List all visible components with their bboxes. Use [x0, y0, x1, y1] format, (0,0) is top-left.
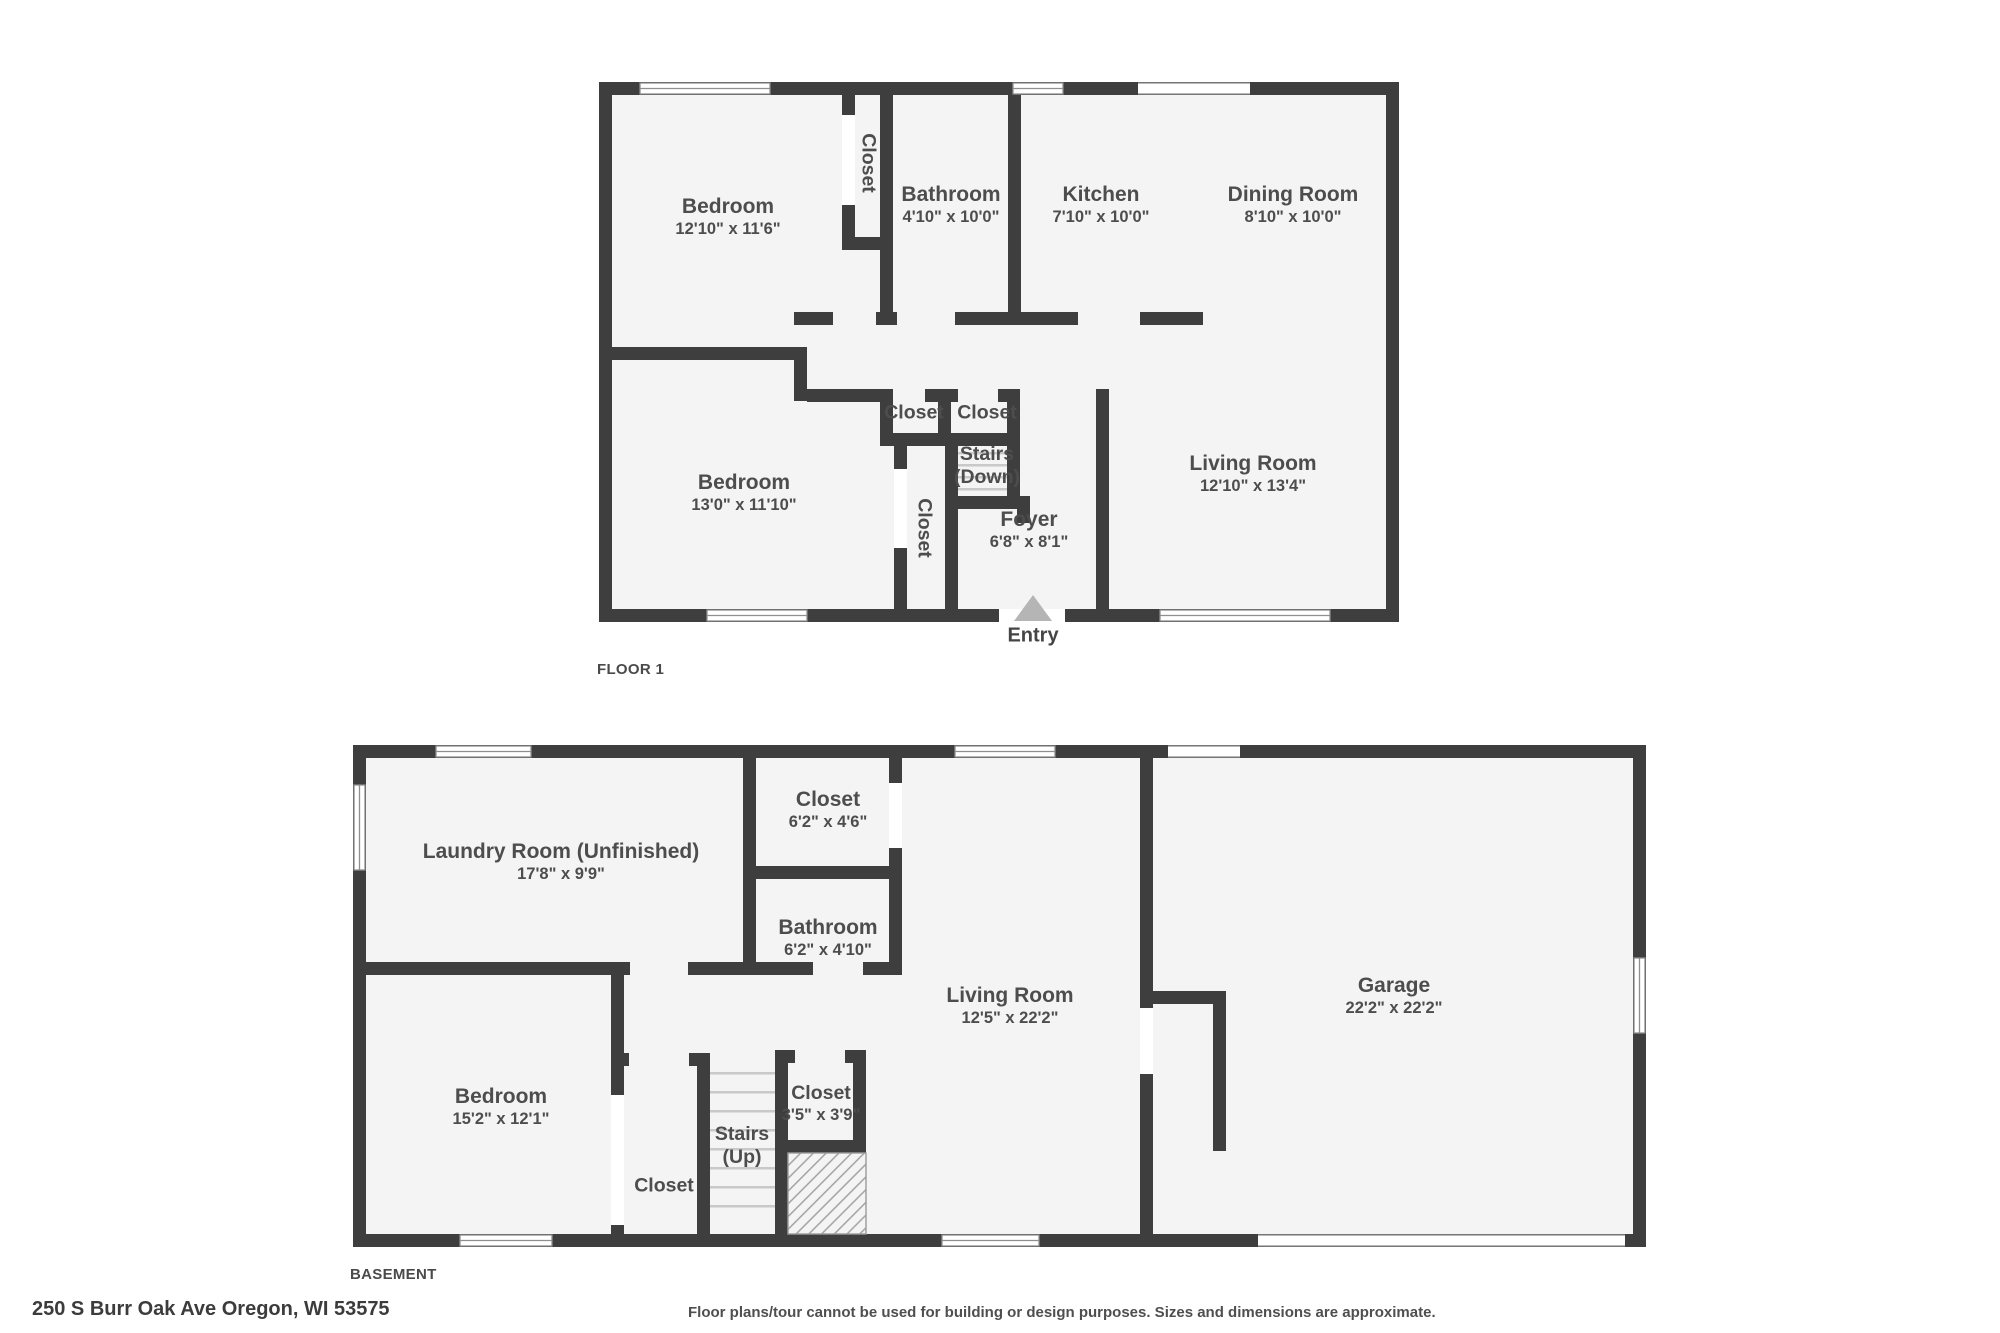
window: [707, 610, 807, 621]
window: [942, 1235, 1039, 1246]
window: [1013, 83, 1063, 94]
room-label-foyer: Foyer 6'8" x 8'1": [990, 507, 1069, 553]
room-label-closet-small: Closet 3'5" x 3'9": [782, 1082, 861, 1126]
room-label-closet-hall-left: Closet: [884, 402, 944, 425]
room-label-closet-hall-right: Closet: [957, 402, 1017, 425]
window: [955, 746, 1055, 757]
room-label-living-room-bsmt: Living Room 12'5" x 22'2": [946, 983, 1073, 1029]
room-label-laundry: Laundry Room (Unfinished) 17'8" x 9'9": [423, 839, 700, 885]
room-label-bedroom-f1-bottom: Bedroom 13'0" x 11'10": [691, 470, 796, 516]
window: [354, 785, 365, 870]
window: [640, 83, 770, 94]
room-label-bedroom-bsmt: Bedroom 15'2" x 12'1": [453, 1084, 550, 1130]
room-label-bathroom-bsmt: Bathroom 6'2" x 4'10": [778, 915, 877, 961]
room-label-kitchen: Kitchen 7'10" x 10'0": [1053, 182, 1150, 228]
room-label-garage: Garage 22'2" x 22'2": [1346, 973, 1443, 1019]
window: [436, 746, 531, 757]
hatch-area: [788, 1153, 866, 1234]
room-label-stairs-up: Stairs (Up): [715, 1123, 769, 1169]
room-label-bedroom-f1-top: Bedroom 12'10" x 11'6": [675, 194, 780, 240]
floorplan-page: Bedroom 12'10" x 11'6" Closet Bathroom 4…: [0, 0, 2000, 1333]
garage-door-opening: [1258, 1235, 1625, 1247]
property-address: 250 S Burr Oak Ave Oregon, WI 53575: [32, 1298, 390, 1321]
room-label-closet-f1-lower: Closet: [913, 498, 936, 558]
basement-title: BASEMENT: [350, 1266, 437, 1283]
room-label-closet-bsmt-top: Closet 6'2" x 4'6": [789, 787, 868, 833]
entry-label: Entry: [1007, 624, 1058, 649]
window: [1634, 958, 1645, 1033]
floor1-title: FLOOR 1: [597, 661, 664, 678]
room-label-stairs-down: Stairs (Down): [954, 443, 1020, 489]
window: [1160, 610, 1330, 621]
wall-opening: [1168, 746, 1240, 758]
room-label-bathroom-f1: Bathroom 4'10" x 10'0": [901, 182, 1000, 228]
wall-opening: [1138, 83, 1250, 95]
room-label-living-room-f1: Living Room 12'10" x 13'4": [1189, 451, 1316, 497]
room-label-dining-room: Dining Room 8'10" x 10'0": [1228, 182, 1359, 228]
window: [460, 1235, 552, 1246]
room-label-closet-bsmt-hall: Closet: [634, 1175, 694, 1198]
room-label-closet-f1-top: Closet: [857, 133, 880, 193]
disclaimer-text: Floor plans/tour cannot be used for buil…: [688, 1304, 1436, 1321]
